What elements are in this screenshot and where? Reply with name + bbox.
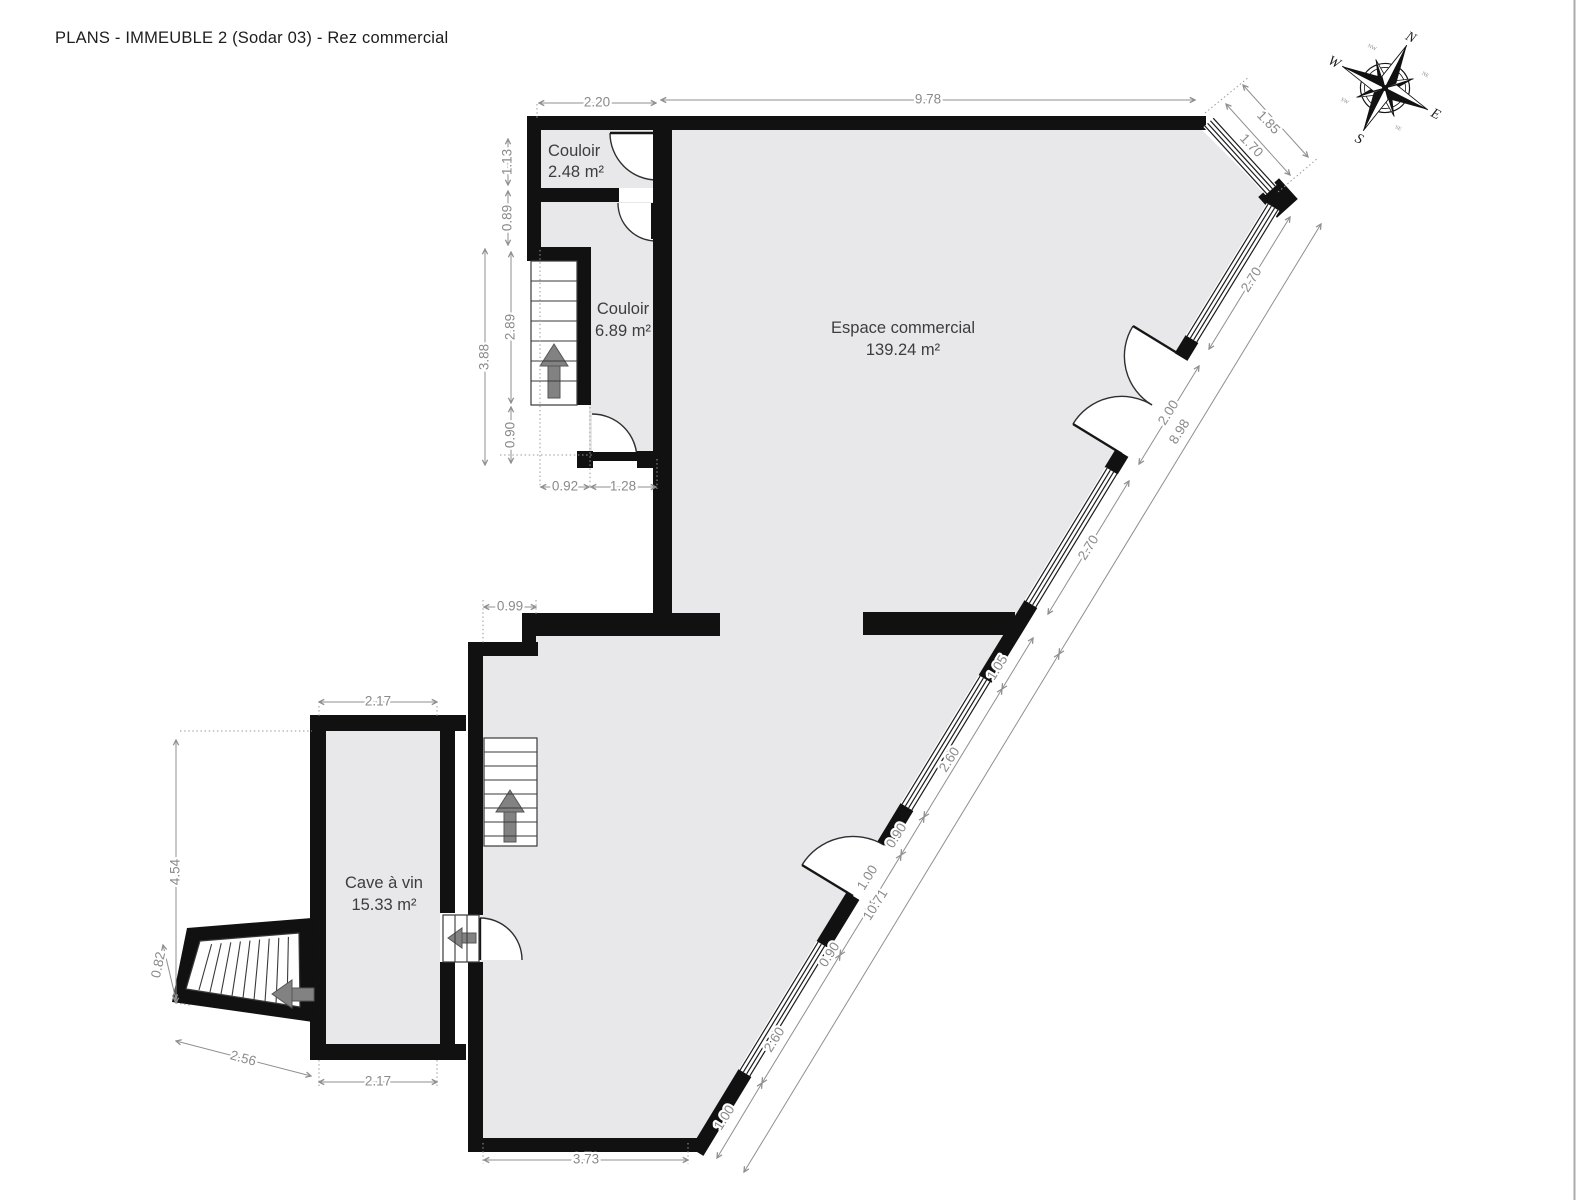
room-area-espace-commercial: 139.24 m² <box>866 341 941 359</box>
compass-east-label: E <box>1427 105 1443 123</box>
compass-rose: N E S W NE SE SW NW <box>1299 3 1469 174</box>
dimension-label: 0.90 <box>503 422 518 448</box>
stairs-espace <box>484 738 537 846</box>
dimension-label: 1.13 <box>500 149 515 175</box>
dimension-label: 1.85 <box>1254 108 1283 137</box>
dimension-label: 3.73 <box>573 1152 599 1167</box>
dimension-label: 0.99 <box>497 599 523 614</box>
room-label-couloir-689: Couloir <box>597 300 650 318</box>
dimension-label: 2.17 <box>365 694 391 709</box>
room-area-couloir-248: 2.48 m² <box>548 163 604 181</box>
compass-southeast-label: SE <box>1394 124 1403 133</box>
dimension-label: 1.28 <box>610 479 636 494</box>
dimension-label: 3.88 <box>477 344 492 370</box>
compass-north-label: N <box>1402 29 1419 47</box>
dimension-label: 9.78 <box>915 92 941 107</box>
dimension-label: 0.92 <box>552 479 578 494</box>
stair-arrow-shaft <box>504 812 516 842</box>
stairs-corridor-exterior <box>172 918 314 1022</box>
floor-couloir-689-upper <box>541 202 589 249</box>
compass-cardinal-rays <box>1320 23 1449 152</box>
dimension-label: 0.82 <box>148 950 168 979</box>
compass-northwest-label: NW <box>1366 43 1378 53</box>
dimension-label: 2.56 <box>229 1047 258 1068</box>
room-label-espace-commercial: Espace commercial <box>831 319 975 337</box>
dimension-label: 2.20 <box>584 95 610 110</box>
compass-northeast-label: NE <box>1421 71 1431 80</box>
dimension-label: 2.89 <box>503 314 518 340</box>
room-area-cave-a-vin: 15.33 m² <box>351 896 417 914</box>
stair-arrow-shaft <box>548 366 560 398</box>
compass-southwest-label: SW <box>1339 97 1350 106</box>
compass-south-label: S <box>1352 131 1365 148</box>
stairs-upper-shaft <box>531 261 577 405</box>
dimension-label: 2.17 <box>365 1074 391 1089</box>
room-area-couloir-689: 6.89 m² <box>595 322 651 340</box>
room-label-couloir-248: Couloir <box>548 142 601 160</box>
room-label-cave-a-vin: Cave à vin <box>345 874 423 892</box>
floor-plan-page: PLANS - IMMEUBLE 2 (Sodar 03) - Rez comm… <box>0 0 1579 1200</box>
compass-west-label: W <box>1325 53 1343 72</box>
stair-arrow-shaft <box>292 988 314 1001</box>
floor-plan-svg: 2.209.781.130.893.882.890.900.921.280.99… <box>0 0 1579 1200</box>
cave-door-steps <box>443 915 479 962</box>
step-arrow-shaft <box>462 933 476 943</box>
dimension-label: 0.89 <box>500 205 515 231</box>
dimension-label: 4.54 <box>168 858 183 885</box>
door-leaf <box>592 452 637 461</box>
